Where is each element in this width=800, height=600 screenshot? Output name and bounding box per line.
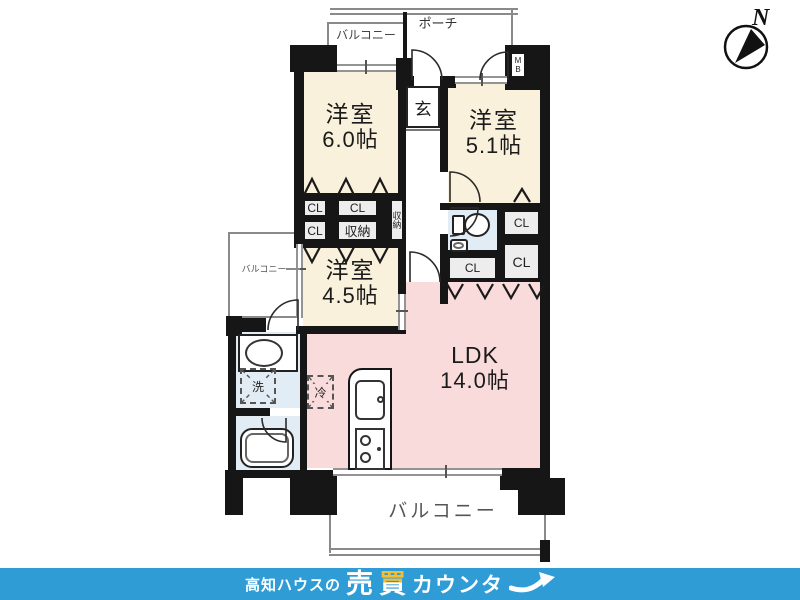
footer-brand-main-2: 買: [379, 571, 407, 598]
bedroom3-size: 4.5帖: [322, 284, 379, 309]
wall-right: [540, 88, 550, 470]
wall-closet-bottom: [295, 241, 406, 248]
closet-label: CL: [307, 224, 322, 238]
entrance-step-line: [406, 129, 440, 131]
outer-edge-line-top-1: [330, 8, 518, 10]
bedroom1-name: 洋室: [326, 102, 376, 128]
storage-label: 収納: [391, 211, 404, 229]
door-washroom: [268, 300, 298, 330]
compass-circle: [725, 26, 767, 68]
closet-label: CL: [514, 216, 529, 230]
porch-label: ポーチ: [406, 14, 470, 30]
wall-closet-divider-2: [378, 199, 390, 241]
footer-banner: 高知ハウスの 売 買 カウンタ: [0, 568, 800, 600]
balcony-bottom-line-1: [329, 548, 546, 550]
wall-hall-right-lower: [440, 234, 448, 304]
ldk-size: 14.0帖: [440, 369, 510, 394]
meter-box-label: MB: [514, 56, 523, 74]
compass: N: [725, 5, 771, 68]
bedroom2-name: 洋室: [469, 108, 519, 134]
footer-brand-main-1: 売: [346, 571, 374, 598]
meter-box: MB: [510, 52, 526, 78]
ldk-name: LDK: [451, 343, 499, 369]
closet-label: CL: [513, 254, 531, 270]
washer-space: 洗: [240, 368, 276, 404]
closet-box: CL: [337, 199, 378, 217]
bathtub-inner: [245, 433, 289, 463]
balcony-top-top-line: [327, 22, 405, 24]
wall-bedroom2-bottom: [440, 203, 550, 210]
balcony-bottom-left-line: [329, 513, 331, 553]
footer-brand-suffix: カウンタ: [412, 569, 504, 599]
closet-label: CL: [465, 261, 480, 275]
door-porch-to-entrance: [412, 50, 442, 80]
closet-box: CL: [303, 220, 327, 241]
washbasin-bowl: [245, 339, 283, 367]
window-bedroom3-left: [296, 244, 303, 318]
bedroom3-name: 洋室: [326, 258, 376, 284]
toilet-hand-basin-bowl: [453, 242, 464, 249]
balcony-top-label: バルコニー: [330, 26, 402, 42]
closet-box: CL: [303, 199, 327, 217]
wall-washroom-right: [300, 334, 307, 470]
bedroom2-size: 5.1帖: [466, 134, 523, 159]
wall-bottom-center-block: [290, 470, 337, 515]
balcony-left-leader-line: [286, 268, 300, 270]
window-tick: [365, 60, 367, 74]
wall-bedroom3-bottom: [296, 326, 406, 334]
wall-balcony-end-cap: [540, 540, 550, 562]
floorplan-page: CL CL CL 収納 収納 CL CL CL MB 玄 洗 冷 洋室 6.0帖…: [0, 0, 800, 600]
closet-box: CL: [503, 210, 540, 236]
stove-knob: [377, 447, 381, 451]
footer-brand-prefix: 高知ハウスの: [245, 574, 341, 595]
bedroom1-label: 洋室 6.0帖: [303, 98, 398, 156]
balcony-bottom-line-2: [329, 554, 546, 556]
stove-burner: [360, 452, 371, 463]
kitchen-faucet: [377, 396, 384, 403]
wall-cl-divider: [503, 236, 540, 243]
wall-bath-top: [228, 408, 270, 416]
storage-box: 収納: [337, 220, 378, 241]
washer-label: 洗: [251, 378, 265, 395]
balcony-bottom-label: バルコニー: [350, 497, 536, 521]
balcony-left-left-line: [228, 232, 230, 328]
entrance-label: 玄: [415, 95, 432, 120]
fridge-label: 冷: [313, 384, 327, 401]
bedroom1-size: 6.0帖: [322, 128, 379, 153]
entrance-hall: 玄: [406, 86, 440, 128]
closet-label: CL: [307, 201, 322, 215]
sliding-door-bedroom3-ldk: [398, 294, 406, 330]
storage-box-vertical: 収納: [390, 199, 404, 241]
wall-closet-divider-1: [327, 199, 337, 241]
window-tick: [481, 73, 483, 86]
wall-bottom-left-post: [225, 470, 243, 515]
compass-north-label: N: [751, 5, 771, 31]
toilet-bowl: [464, 213, 490, 237]
balcony-left-top-line: [228, 232, 298, 234]
swoosh-arrow-icon: [509, 570, 555, 598]
storage-label: 収納: [344, 221, 370, 240]
compass-needle: [735, 29, 765, 63]
balcony-left-label: バルコニー: [236, 262, 292, 274]
stove-burner: [360, 435, 371, 446]
door-hall-to-ldk: [410, 252, 440, 282]
window-tick: [445, 465, 447, 478]
bedroom2-label: 洋室 5.1帖: [448, 104, 540, 162]
wall-bedroom3-bottom-left: [226, 318, 266, 332]
bedroom3-label: 洋室 4.5帖: [303, 254, 398, 312]
wall: [290, 45, 337, 72]
closet-label: CL: [350, 201, 365, 215]
closet-box: CL: [503, 243, 540, 280]
wall-wet-left: [228, 334, 236, 478]
closet-box: CL: [448, 256, 497, 280]
fridge-space: 冷: [307, 375, 334, 409]
ldk-label: LDK 14.0帖: [410, 338, 540, 398]
wall-hall-right-upper: [440, 84, 448, 172]
